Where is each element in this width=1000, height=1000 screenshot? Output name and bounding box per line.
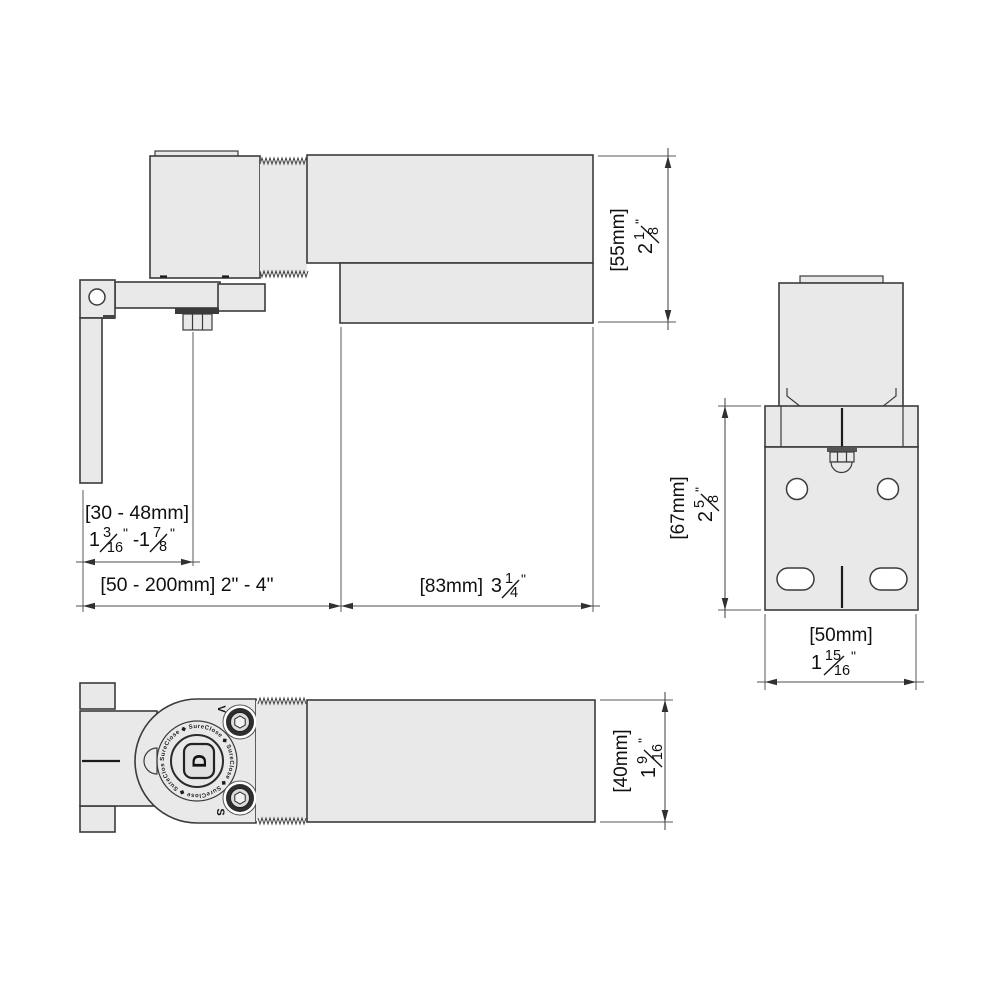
inch-mark: " bbox=[851, 648, 856, 664]
dim-text-metric: [55mm] bbox=[608, 208, 629, 271]
washer-band bbox=[175, 308, 219, 314]
dim-text-metric: [40mm] bbox=[611, 729, 632, 792]
dim-text-metric: [67mm] bbox=[668, 476, 689, 539]
arm-bracket-left bbox=[115, 282, 220, 308]
dd-logo-letter: D bbox=[190, 754, 211, 768]
dim-text-whole: 3 bbox=[491, 575, 502, 597]
dim-text-den: 8 bbox=[646, 227, 662, 235]
dim-text-den: 8 bbox=[159, 539, 167, 555]
dim-text-whole: 1 bbox=[638, 767, 660, 778]
screw-hole-right bbox=[878, 479, 899, 500]
closer-body-upper bbox=[307, 155, 593, 263]
thread-body bbox=[260, 161, 307, 273]
slot-hole-right bbox=[870, 568, 907, 590]
plan-door-tab-top bbox=[80, 683, 115, 709]
pivot-nut bbox=[183, 314, 212, 330]
dim-text-whole: 1 bbox=[89, 529, 100, 551]
dim-text-den: 8 bbox=[706, 495, 722, 503]
dim-text-mount-range: [50 - 200mm] 2" - 4" bbox=[100, 574, 273, 596]
arm-pivot-hole bbox=[89, 289, 105, 305]
dim-text-metric: [50mm] bbox=[809, 625, 872, 646]
inch-mark: " bbox=[170, 525, 175, 541]
plan-thread-body bbox=[256, 701, 307, 821]
adjust-screw-bottom bbox=[223, 781, 257, 815]
plan-closer-body bbox=[307, 700, 595, 822]
plan-door-tab-bottom bbox=[80, 806, 115, 832]
front-view bbox=[765, 276, 918, 610]
inch-mark: " bbox=[521, 571, 526, 587]
dim-text-metric: [30 - 48mm] bbox=[85, 502, 189, 524]
dim-text-whole: 2 bbox=[635, 243, 657, 254]
pin-hex-head bbox=[830, 452, 854, 462]
technical-drawing-page: SureClose ◆ SureClose ◆ SureClose ◆ Sure… bbox=[0, 0, 1000, 1000]
dim-text-whole: 1 bbox=[811, 652, 822, 674]
dim-text-den: 16 bbox=[834, 663, 850, 679]
dim-text-num: 9 bbox=[635, 756, 651, 764]
hex-socket-icon bbox=[235, 792, 245, 804]
screw-hole-left bbox=[787, 479, 808, 500]
inch-mark: " bbox=[632, 219, 648, 224]
closer-cylinder bbox=[150, 156, 260, 278]
valve-label-bottom: S bbox=[214, 808, 226, 815]
pin-washer bbox=[827, 447, 857, 452]
inch-mark: " bbox=[692, 487, 708, 492]
valve-label-top: V bbox=[215, 705, 227, 713]
arm-bracket-right bbox=[218, 284, 265, 311]
slot-hole-left bbox=[777, 568, 814, 590]
inch-mark: " bbox=[635, 738, 651, 743]
adjust-screw-top bbox=[223, 705, 257, 739]
dim-text-den: 4 bbox=[510, 585, 518, 601]
inch-mark: " bbox=[123, 525, 128, 541]
closer-body-lower bbox=[340, 263, 593, 323]
hex-socket-icon bbox=[235, 716, 245, 728]
dim-text-den: 16 bbox=[107, 540, 123, 556]
dim-text-num: 3 bbox=[103, 525, 111, 541]
dim-text-whole: 1 bbox=[139, 529, 150, 551]
front-closer-body bbox=[779, 283, 903, 407]
dim-text-whole: 2 bbox=[695, 511, 717, 522]
technical-drawing-canvas: SureClose ◆ SureClose ◆ SureClose ◆ Sure… bbox=[0, 0, 1000, 1000]
door-leaf-bar bbox=[80, 318, 102, 483]
dim-text-den: 16 bbox=[650, 744, 666, 760]
dim-text-metric: [83mm] bbox=[420, 576, 483, 597]
front-cap bbox=[800, 276, 883, 283]
shoe-corner-shadow bbox=[103, 315, 115, 319]
